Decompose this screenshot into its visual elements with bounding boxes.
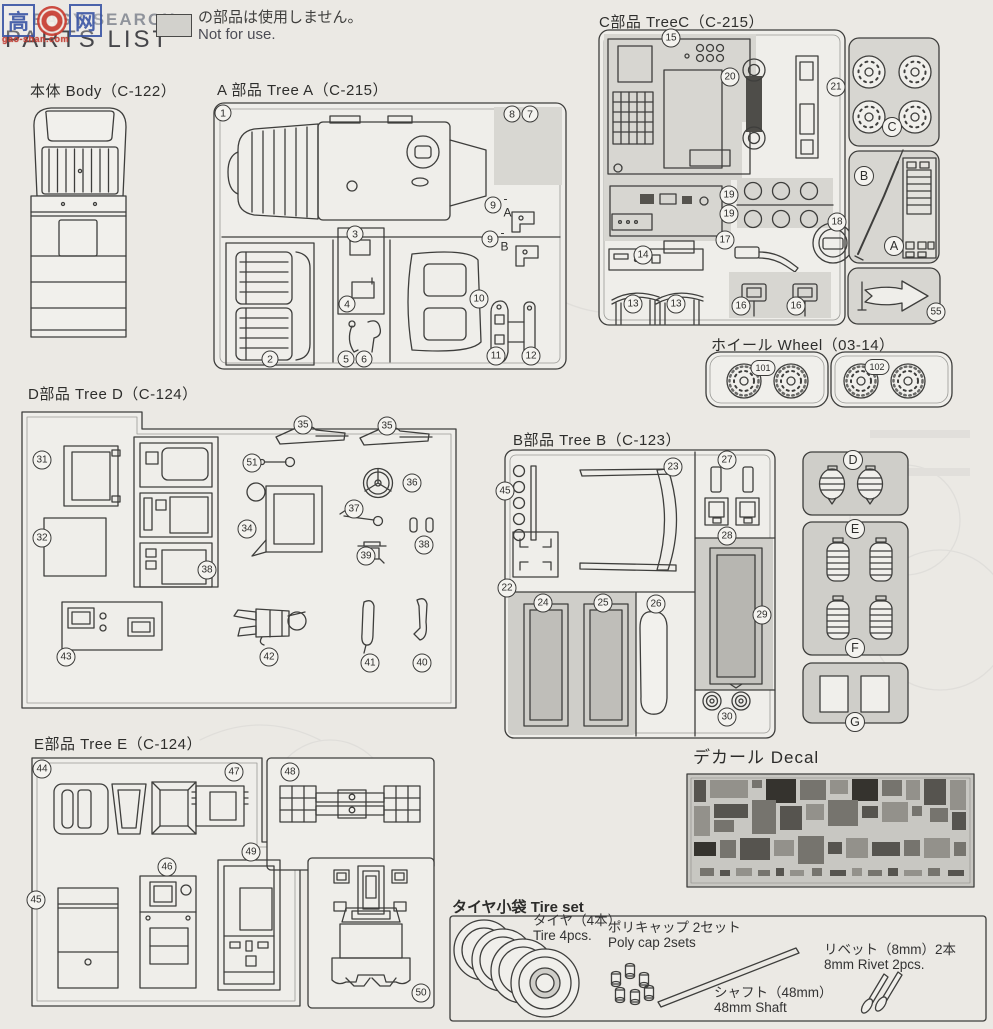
part-number-badge: 9- B: [482, 231, 499, 248]
section-title-tree-d: D部品 Tree D（C-124）: [28, 383, 198, 404]
part-number-badge: 27: [718, 451, 737, 470]
tire-set-item-label: リベット（8mm）2本8mm Rivet 2pcs.: [824, 942, 956, 972]
part-number-badge: 43: [57, 648, 76, 667]
poly-cap-icons: [612, 964, 654, 1005]
watermark-gear-icon: [37, 6, 67, 36]
part-number-badge: 21: [827, 78, 846, 97]
part-number-badge: 40: [413, 654, 432, 673]
part-number-badge: 25: [594, 594, 613, 613]
part-number-badge: A: [884, 236, 904, 256]
not-for-use-swatch: [156, 14, 192, 37]
part-number-badge: 50: [412, 984, 431, 1003]
part-number-badge: E: [845, 519, 865, 539]
section-title-wheel: ホイール Wheel（03-14）: [711, 334, 895, 355]
part-number-badge: C: [882, 117, 902, 137]
part-number-badge: 19: [720, 205, 739, 224]
part-number-badge: 35: [294, 416, 313, 435]
part-number-badge: 24: [534, 594, 553, 613]
part-number-suffix: - B: [501, 225, 509, 253]
section-title-body: 本体 Body（C-122）: [30, 80, 176, 101]
part-number-badge: 55: [927, 303, 946, 322]
part-number-badge: 45: [496, 482, 515, 501]
wheel-illustration: [706, 352, 952, 407]
part-number-badge: 4: [339, 296, 356, 313]
decal-sheet: [687, 774, 974, 887]
part-number-badge: F: [845, 638, 865, 658]
part-number-badge: 46: [158, 858, 177, 877]
part-number-badge: 32: [33, 529, 52, 548]
part-number-badge: 31: [33, 451, 52, 470]
part-number-badge: 12: [522, 347, 541, 366]
part-number-badge: 5: [338, 351, 355, 368]
section-title-tree-e: E部品 Tree E（C-124）: [34, 733, 202, 754]
part-number-badge: 10: [470, 290, 489, 309]
part-number-badge: 42: [260, 648, 279, 667]
part-number-badge: 23: [664, 458, 683, 477]
tire-set-item-label: シャフト（48mm）48mm Shaft: [714, 985, 833, 1015]
part-number-badge: 41: [361, 654, 380, 673]
part-number-badge: 34: [238, 520, 257, 539]
part-number-badge: 49: [242, 843, 261, 862]
part-number-badge: 38: [415, 536, 434, 555]
part-number-badge: 28: [718, 527, 737, 546]
part-number-badge: 38: [198, 561, 217, 580]
part-number-badge: 36: [403, 474, 422, 493]
part-number-suffix: - A: [504, 191, 512, 219]
part-number-badge: 37: [345, 500, 364, 519]
part-number-badge: 30: [718, 708, 737, 727]
part-number-badge: 3: [347, 226, 364, 243]
part-number-badge: 17: [716, 231, 735, 250]
tree-e-sprue: [32, 758, 434, 1008]
part-number-badge: 13: [667, 295, 686, 314]
tree-b-sprue: [505, 450, 908, 738]
body-illustration: [31, 108, 126, 337]
part-number-badge: 14: [634, 246, 653, 265]
tree-a-sprue: [214, 103, 566, 369]
part-number-badge: 39: [357, 547, 376, 566]
part-number-badge: 45: [27, 891, 46, 910]
part-number-badge: 102: [865, 359, 890, 375]
parts-diagram: [0, 0, 993, 1029]
part-number-badge: 44: [33, 760, 52, 779]
part-number-badge: 15: [662, 29, 681, 48]
part-number-badge: 9- A: [485, 197, 502, 214]
part-number-badge: 2: [262, 351, 279, 368]
tree-c-sprue: [599, 30, 940, 325]
part-number-badge: G: [845, 712, 865, 732]
part-number-badge: 11: [487, 347, 506, 366]
tire-set-item-label: ポリキャップ 2セットPoly cap 2sets: [608, 920, 741, 950]
not-for-use-en: Not for use.: [198, 26, 276, 43]
part-number-badge: 6: [356, 351, 373, 368]
part-number-badge: 101: [751, 360, 776, 376]
part-number-badge: 22: [498, 579, 517, 598]
part-number-badge: 16: [787, 297, 806, 316]
section-title-tree-a: A 部品 Tree A（C-215）: [217, 79, 388, 100]
part-number-badge: 16: [732, 297, 751, 316]
watermark-logo: 高 网 gao-shan.com: [2, 4, 102, 44]
part-number-badge: 51: [243, 454, 262, 473]
part-number-badge: 26: [647, 595, 666, 614]
part-number-badge: 1: [215, 105, 232, 122]
section-title-tree-c: C部品 TreeC（C-215）: [599, 11, 764, 32]
parts-list-page: EASY SEARCH PARTS LIST 高 网 gao-shan.com …: [0, 0, 993, 1029]
part-number-badge: 35: [378, 417, 397, 436]
part-number-badge: B: [854, 166, 874, 186]
not-for-use-jp: の部品は使用しません。: [198, 6, 363, 27]
tree-d-sprue: [22, 412, 456, 708]
part-number-badge: 8: [504, 106, 521, 123]
part-number-badge: 29: [753, 606, 772, 625]
part-number-badge: 18: [828, 213, 847, 232]
part-number-badge: 19: [720, 186, 739, 205]
part-number-badge: 48: [281, 763, 300, 782]
section-title-tree-b: B部品 Tree B（C-123）: [513, 429, 681, 450]
watermark-right-char: 网: [69, 4, 102, 37]
part-number-badge: 47: [225, 763, 244, 782]
watermark-left-char: 高: [2, 4, 35, 37]
part-number-badge: 7: [522, 106, 539, 123]
part-number-badge: 13: [624, 295, 643, 314]
part-number-badge: D: [843, 450, 863, 470]
part-number-badge: 20: [721, 68, 740, 87]
rivet-icons: [859, 972, 902, 1015]
section-title-decal: デカール Decal: [693, 743, 819, 768]
